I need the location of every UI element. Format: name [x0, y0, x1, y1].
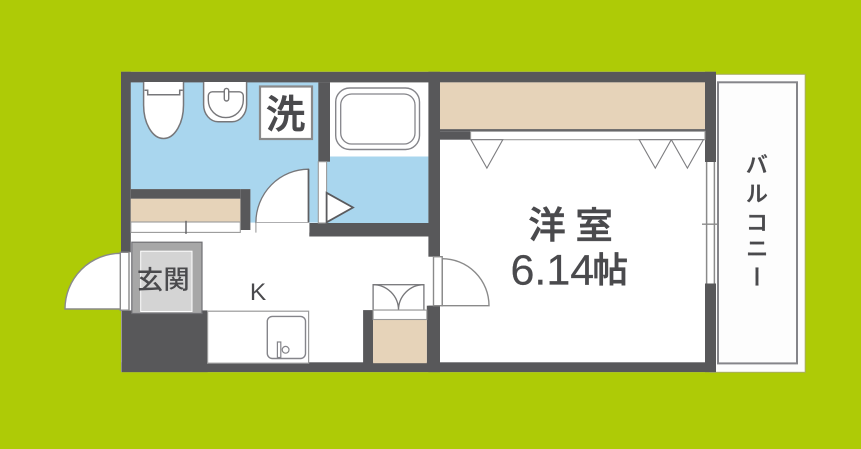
- svg-text:K: K: [250, 279, 267, 306]
- svg-text:6.14: 6.14: [511, 246, 595, 294]
